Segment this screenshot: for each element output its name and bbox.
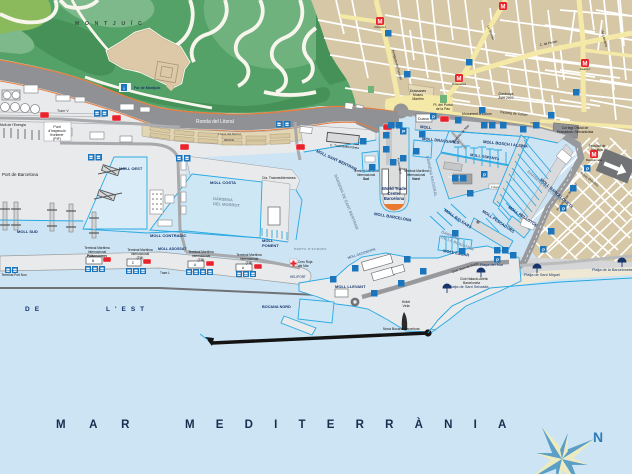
svg-text:Barceloneta: Barceloneta [586,158,602,162]
svg-text:Monument a Colom: Monument a Colom [462,112,492,116]
svg-text:Platja de Sant Sebastià: Platja de Sant Sebastià [449,285,489,289]
svg-text:Far de Montjuïc: Far de Montjuïc [134,86,161,90]
svg-text:P: P [562,207,565,212]
svg-text:M: M [501,5,506,11]
svg-text:Duana: Duana [418,117,429,121]
svg-text:i: i [123,86,124,91]
svg-text:Sud: Sud [363,177,369,181]
svg-text:MOLL CONTRADIC: MOLL CONTRADIC [150,233,186,238]
svg-text:Marítim: Marítim [412,97,423,101]
svg-text:N: N [593,429,603,445]
svg-text:Nord: Nord [412,177,419,181]
svg-text:(PIF): (PIF) [53,137,61,141]
svg-text:P: P [483,173,486,178]
svg-text:Avet 2000: Avet 2000 [498,96,513,100]
svg-text:Port de Barcelona: Port de Barcelona [2,172,39,177]
svg-text:P: P [542,248,545,253]
svg-text:(TM): (TM) [198,258,205,262]
svg-text:L'EST: L'EST [106,306,149,313]
svg-text:Tram L: Tram L [160,271,170,275]
svg-text:MOLL COSTA: MOLL COSTA [210,180,236,185]
svg-text:PORTA D’EUROPA: PORTA D’EUROPA [294,247,327,251]
svg-text:MOLL LLEVANT: MOLL LLEVANT [335,284,366,289]
svg-text:MOLL ADOSSAT: MOLL ADOSSAT [158,247,187,251]
svg-text:HELIPORT: HELIPORT [290,275,306,279]
svg-text:Cia. Trasmediterránea: Cia. Trasmediterránea [262,176,296,180]
svg-text:MEDITERRÀNIA: MEDITERRÀNIA [185,418,528,431]
svg-text:Barcelona: Barcelona [384,196,405,201]
svg-text:BOCANA NORD: BOCANA NORD [262,305,291,309]
svg-text:Platja de Sant Miquel: Platja de Sant Miquel [524,273,560,277]
svg-text:Plaça del Mar: Plaça del Mar [480,263,504,267]
svg-text:DE: DE [25,306,44,313]
svg-text:Jaume I: Jaume I [580,67,591,71]
svg-text:P: P [586,167,589,172]
svg-text:MOLL SUD: MOLL SUD [17,229,38,234]
svg-text:Ronda del Litoral: Ronda del Litoral [196,119,234,125]
svg-text:Vela: Vela [403,304,410,308]
svg-text:Freixa del Morrot: Freixa del Morrot [218,132,241,136]
svg-text:PONENT: PONENT [262,243,279,248]
svg-text:RENFE: RENFE [224,138,234,142]
svg-text:MAR: MAR [56,419,153,431]
svg-text:P: P [496,258,499,263]
svg-text:Drassanes: Drassanes [452,82,467,86]
svg-text:Platja de la Barceloneta: Platja de la Barceloneta [592,268,632,272]
svg-text:MONTJUÏC: MONTJUÏC [75,20,148,27]
svg-text:Terminal Port Nou: Terminal Port Nou [1,273,27,277]
svg-text:Paral·lel: Paral·lel [374,25,385,29]
svg-text:del Mar: del Mar [298,264,310,268]
svg-text:Moll de l'Energia: Moll de l'Energia [0,123,26,127]
svg-text:Nova Bocana Barcelona: Nova Bocana Barcelona [383,327,420,331]
svg-text:Pescadors i Mecanicista: Pescadors i Mecanicista [557,130,594,134]
svg-text:(TM): (TM) [246,261,253,265]
svg-text:(TM): (TM) [137,256,144,260]
svg-text:MOLL OEST: MOLL OEST [119,166,143,171]
svg-text:P: P [432,115,435,120]
svg-text:P: P [402,129,405,134]
svg-text:Barceloneta: Barceloneta [463,281,480,285]
svg-text:de la Pau: de la Pau [436,107,450,111]
svg-text:Tram V: Tram V [57,109,69,113]
